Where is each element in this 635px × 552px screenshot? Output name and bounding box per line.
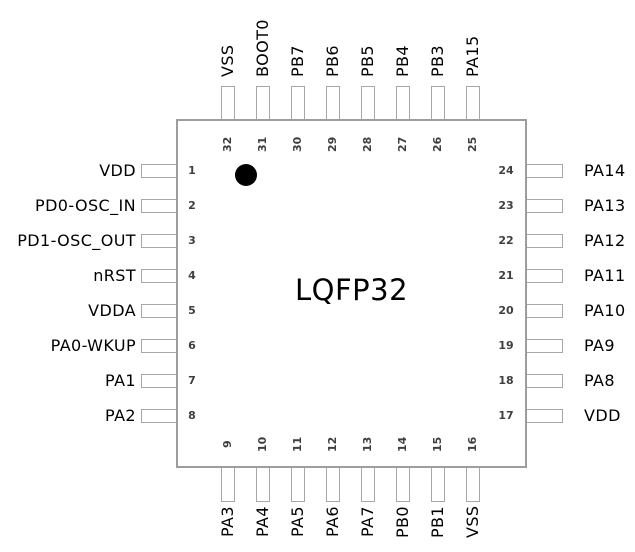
pin-31-label: BOOT0	[253, 5, 273, 77]
pin-25-label: PA15	[463, 5, 483, 77]
pin-26-number: 26	[431, 129, 445, 159]
pin-16-label: VSS	[463, 506, 483, 550]
pin-13-stub	[361, 467, 375, 502]
pin-11-label: PA5	[288, 506, 308, 550]
pin-14-number: 14	[396, 429, 410, 459]
pin-7-stub	[141, 374, 177, 388]
pin-32-label: VSS	[218, 5, 238, 77]
pin1-indicator-dot	[235, 164, 257, 186]
pin-5-stub	[141, 304, 177, 318]
pin-1-label: VDD	[0, 161, 136, 181]
pin-32-stub	[221, 86, 235, 120]
pin-26-label: PB3	[428, 5, 448, 77]
pin-9-stub	[221, 467, 235, 502]
pin-15-label: PB1	[428, 506, 448, 550]
pin-22-stub	[525, 234, 563, 248]
pin-4-number: 4	[180, 269, 204, 283]
pin-6-stub	[141, 339, 177, 353]
pin-22-label: PA12	[584, 231, 634, 251]
pin-6-label: PA0-WKUP	[0, 336, 136, 356]
pin-31-number: 31	[256, 129, 270, 159]
pin-29-label: PB6	[323, 5, 343, 77]
pin-1-stub	[141, 164, 177, 178]
pin-10-label: PA4	[253, 506, 273, 550]
pin-4-stub	[141, 269, 177, 283]
pin-17-number: 17	[494, 409, 518, 423]
pin-10-stub	[256, 467, 270, 502]
chip-body: LQFP32	[176, 119, 527, 468]
pin-16-stub	[466, 467, 480, 502]
pin-18-label: PA8	[584, 371, 634, 391]
pin-3-stub	[141, 234, 177, 248]
pin-28-stub	[361, 86, 375, 120]
pin-3-label: PD1-OSC_OUT	[0, 231, 136, 251]
pin-21-number: 21	[494, 269, 518, 283]
pin-25-stub	[466, 86, 480, 120]
pin-31-stub	[256, 86, 270, 120]
pin-12-number: 12	[326, 429, 340, 459]
pin-27-label: PB4	[393, 5, 413, 77]
pin-20-stub	[525, 304, 563, 318]
pin-28-label: PB5	[358, 5, 378, 77]
pin-26-stub	[431, 86, 445, 120]
pin-5-number: 5	[180, 304, 204, 318]
pin-15-number: 15	[431, 429, 445, 459]
pin-13-label: PA7	[358, 506, 378, 550]
pin-24-label: PA14	[584, 161, 634, 181]
pin-11-number: 11	[291, 429, 305, 459]
pin-15-stub	[431, 467, 445, 502]
pin-28-number: 28	[361, 129, 375, 159]
pin-2-number: 2	[180, 199, 204, 213]
pin-25-number: 25	[466, 129, 480, 159]
pin-9-number: 9	[221, 429, 235, 459]
pin-27-number: 27	[396, 129, 410, 159]
pin-32-number: 32	[221, 129, 235, 159]
pin-8-label: PA2	[0, 406, 136, 426]
pin-7-label: PA1	[0, 371, 136, 391]
pin-6-number: 6	[180, 339, 204, 353]
pinout-diagram: LQFP32 1VDD2PD0-OSC_IN3PD1-OSC_OUT4nRST5…	[0, 0, 635, 552]
pin-29-stub	[326, 86, 340, 120]
pin-4-label: nRST	[0, 266, 136, 286]
pin-12-label: PA6	[323, 506, 343, 550]
pin-8-stub	[141, 409, 177, 423]
pin-8-number: 8	[180, 409, 204, 423]
pin-22-number: 22	[494, 234, 518, 248]
pin-18-stub	[525, 374, 563, 388]
pin-24-stub	[525, 164, 563, 178]
pin-14-stub	[396, 467, 410, 502]
pin-17-label: VDD	[584, 406, 634, 426]
pin-10-number: 10	[256, 429, 270, 459]
pin-7-number: 7	[180, 374, 204, 388]
pin-23-label: PA13	[584, 196, 634, 216]
pin-1-number: 1	[180, 164, 204, 178]
pin-16-number: 16	[466, 429, 480, 459]
pin-30-number: 30	[291, 129, 305, 159]
pin-30-stub	[291, 86, 305, 120]
pin-3-number: 3	[180, 234, 204, 248]
pin-20-label: PA10	[584, 301, 634, 321]
pin-13-number: 13	[361, 429, 375, 459]
pin-21-label: PA11	[584, 266, 634, 286]
pin-12-stub	[326, 467, 340, 502]
pin-30-label: PB7	[288, 5, 308, 77]
pin-2-label: PD0-OSC_IN	[0, 196, 136, 216]
pin-20-number: 20	[494, 304, 518, 318]
pin-19-stub	[525, 339, 563, 353]
pin-2-stub	[141, 199, 177, 213]
pin-27-stub	[396, 86, 410, 120]
pin-5-label: VDDA	[0, 301, 136, 321]
pin-21-stub	[525, 269, 563, 283]
pin-29-number: 29	[326, 129, 340, 159]
pin-23-stub	[525, 199, 563, 213]
pin-11-stub	[291, 467, 305, 502]
pin-24-number: 24	[494, 164, 518, 178]
pin-17-stub	[525, 409, 563, 423]
package-name: LQFP32	[178, 273, 525, 307]
pin-23-number: 23	[494, 199, 518, 213]
pin-9-label: PA3	[218, 506, 238, 550]
pin-19-label: PA9	[584, 336, 634, 356]
pin-18-number: 18	[494, 374, 518, 388]
pin-14-label: PB0	[393, 506, 413, 550]
pin-19-number: 19	[494, 339, 518, 353]
